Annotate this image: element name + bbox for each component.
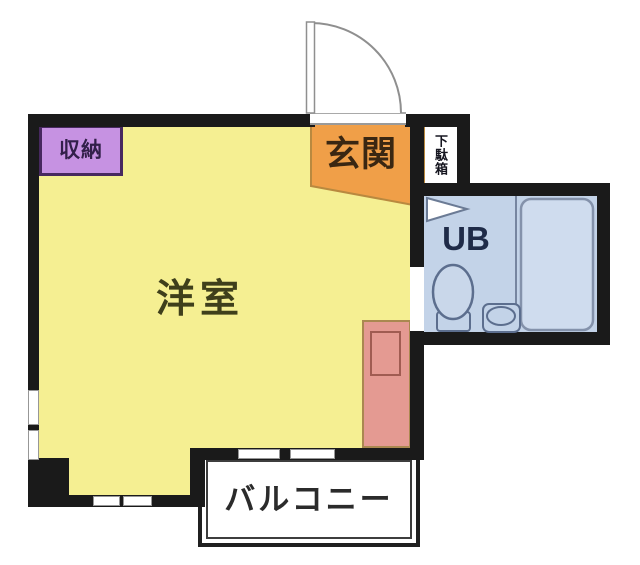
shoe-cabinet-label: 下駄箱	[424, 127, 457, 183]
balcony-window-1	[238, 449, 280, 459]
window-left-upper	[28, 390, 39, 425]
storage-label: 収納	[59, 140, 103, 161]
wall-top-left	[28, 114, 315, 127]
window-bottom-left-1	[93, 496, 120, 506]
entrance-door-opening	[310, 112, 406, 125]
balcony-label: バルコニー	[202, 456, 416, 543]
unit-bath-label: UB	[428, 217, 504, 259]
bath-door-opening	[410, 267, 424, 331]
storage-closet: 収納	[39, 125, 123, 176]
living-room-label: 洋室	[112, 268, 288, 330]
kitchen-stove	[370, 331, 401, 376]
unit-bath	[410, 183, 610, 345]
entrance-door-arc-icon	[311, 23, 401, 113]
window-bottom-left-2	[123, 496, 152, 506]
balcony-window-2	[290, 449, 335, 459]
floor-plan: 収納 バルコニー	[0, 0, 640, 565]
balcony: バルコニー	[198, 452, 420, 547]
kitchen-unit	[362, 320, 411, 448]
entrance-label: 玄関	[313, 129, 409, 179]
entrance-door-swing-area	[311, 23, 401, 113]
window-left-lower	[28, 430, 39, 460]
entrance-door-leaf-icon	[307, 22, 315, 113]
